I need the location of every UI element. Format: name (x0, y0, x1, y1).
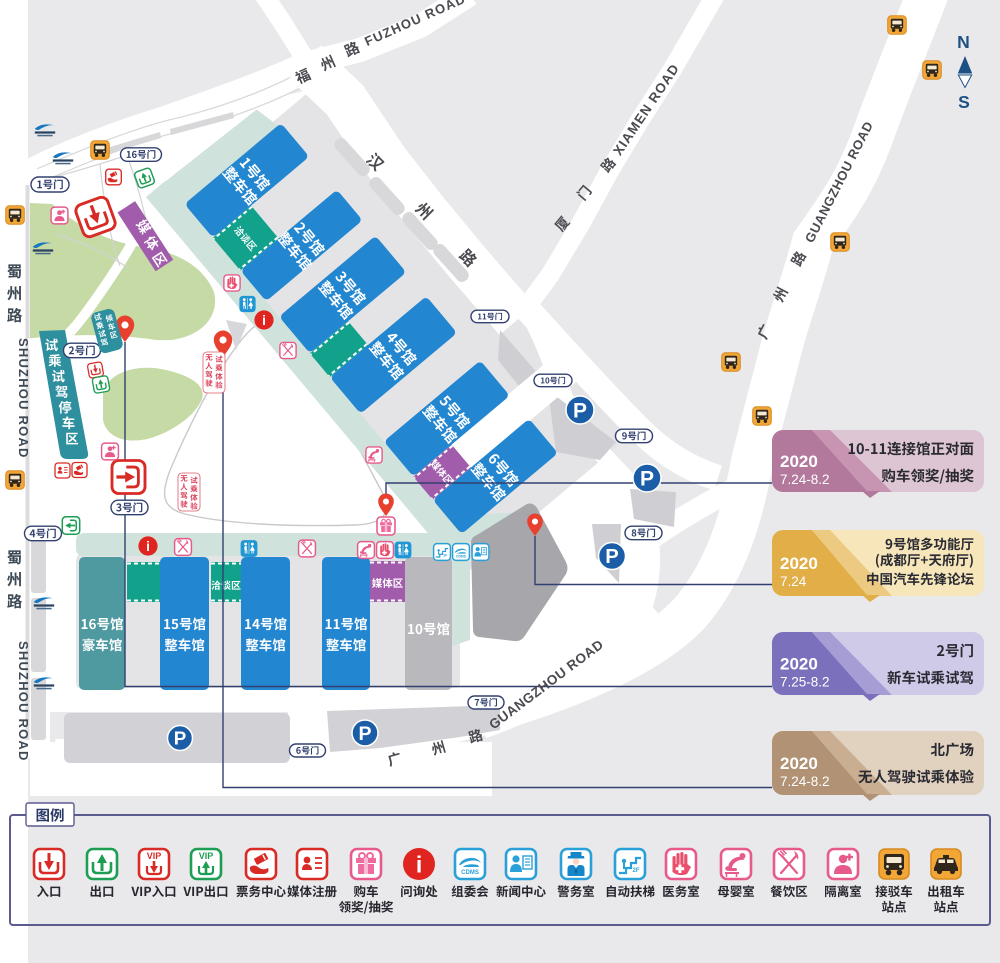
svg-text:7.24-8.2: 7.24-8.2 (780, 774, 830, 789)
svg-text:2020: 2020 (780, 655, 818, 674)
svg-text:P: P (573, 399, 587, 422)
svg-text:7.25-8.2: 7.25-8.2 (780, 675, 830, 690)
svg-text:7.24-8.2: 7.24-8.2 (780, 472, 830, 487)
svg-text:SHUZHOU ROAD: SHUZHOU ROAD (16, 641, 31, 762)
svg-text:2020: 2020 (780, 452, 818, 471)
svg-text:P: P (640, 467, 654, 490)
svg-text:7.24: 7.24 (780, 574, 807, 589)
svg-text:N: N (957, 32, 970, 52)
svg-text:2020: 2020 (780, 754, 818, 773)
svg-text:P: P (605, 546, 618, 568)
svg-text:P: P (358, 723, 371, 745)
svg-text:S: S (958, 92, 970, 112)
svg-text:2020: 2020 (780, 554, 818, 573)
svg-text:P: P (174, 728, 187, 749)
svg-text:SHUZHOU ROAD: SHUZHOU ROAD (16, 338, 31, 459)
